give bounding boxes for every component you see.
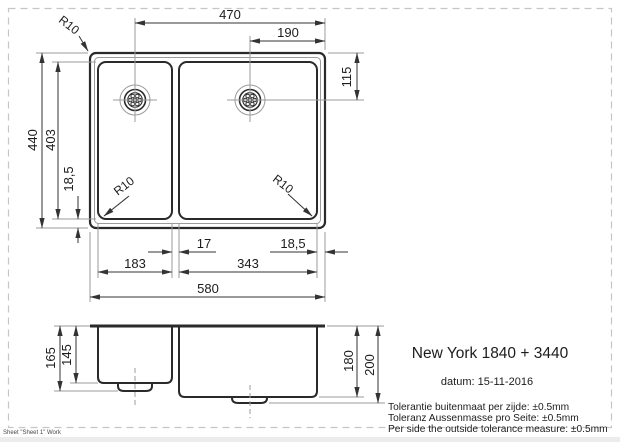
dim-343-label: 343 bbox=[237, 256, 259, 271]
dim-165-label: 165 bbox=[43, 347, 58, 369]
right-bowl-profile bbox=[179, 327, 317, 397]
sink-flange-line bbox=[95, 58, 321, 224]
tolerance-line-nl: Tolerantie buitenmaat per zijde: ±0.5mm bbox=[388, 402, 569, 413]
dim-200-label: 200 bbox=[362, 354, 377, 376]
sink-technical-drawing: 470 190 115 440 403 18,5 17 18,5 183 343… bbox=[0, 0, 620, 442]
dim-18-5-left-label: 18,5 bbox=[61, 166, 76, 191]
dim-190-label: 190 bbox=[277, 25, 299, 40]
dim-145-label: 145 bbox=[59, 344, 74, 366]
tolerance-line-de: Toleranz Aussenmasse pro Seite: ±0.5mm bbox=[388, 413, 579, 424]
radius-right-bowl-label: R10 bbox=[270, 172, 296, 197]
title-block: New York 1840 + 3440 datum: 15-11-2016 T… bbox=[388, 345, 608, 435]
dim-403-label: 403 bbox=[43, 129, 58, 151]
radius-left-bowl-label: R10 bbox=[111, 174, 137, 199]
sheet-footer-label: Sheet "Sheet 1" Work bbox=[3, 430, 62, 436]
dim-115-label: 115 bbox=[339, 67, 354, 88]
dim-440-label: 440 bbox=[25, 129, 40, 151]
side-view bbox=[90, 326, 325, 418]
tolerance-line-en: Per side the outside tolerance measure: … bbox=[388, 424, 608, 435]
top-view-dimension-labels: 470 190 115 440 403 18,5 17 18,5 183 343… bbox=[25, 7, 354, 296]
left-bowl-profile bbox=[98, 327, 172, 383]
model-title: New York 1840 + 3440 bbox=[412, 345, 569, 362]
side-view-extension-lines bbox=[54, 326, 385, 403]
dim-18-5-right-label: 18,5 bbox=[280, 236, 305, 251]
side-view-dimension-labels: 165 145 180 200 bbox=[43, 344, 377, 376]
sink-outer-edge bbox=[90, 53, 325, 228]
dim-580-label: 580 bbox=[197, 281, 219, 296]
dim-183-label: 183 bbox=[124, 256, 146, 271]
dim-17-label: 17 bbox=[197, 236, 211, 251]
top-view bbox=[90, 53, 325, 228]
date-label: datum: 15-11-2016 bbox=[441, 376, 533, 388]
drawing-page: 470 190 115 440 403 18,5 17 18,5 183 343… bbox=[0, 0, 620, 442]
top-view-extension-lines bbox=[36, 18, 364, 302]
radius-corner-label: R10 bbox=[56, 13, 82, 38]
dim-470-label: 470 bbox=[219, 7, 241, 22]
dim-180-label: 180 bbox=[341, 350, 356, 372]
